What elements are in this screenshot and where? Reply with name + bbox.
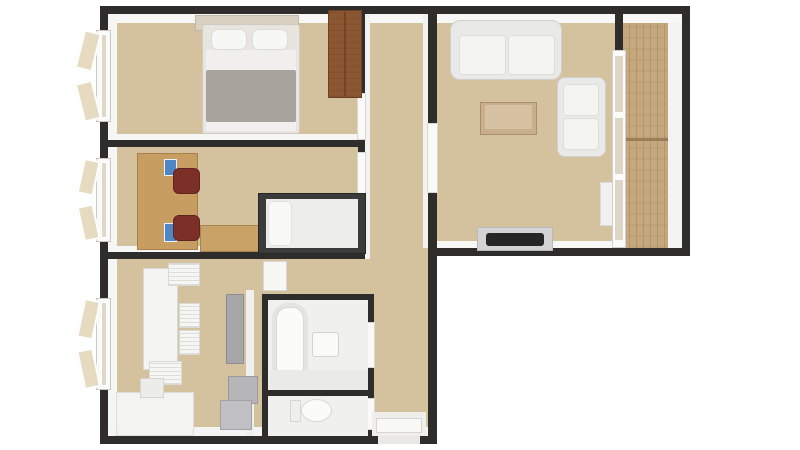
balcony-glass-pane-1 [615,56,623,112]
bed-pillow-right [252,29,288,50]
door-living-panel [427,123,438,193]
wall-top [100,6,690,14]
entrance-door-panel [376,418,422,433]
dining-chair-head [168,263,200,286]
wall-hall-right-full [428,14,437,444]
armchair-cushion-1 [563,84,599,116]
dining-chair-right-2 [179,330,200,355]
door-study-panel [357,152,366,194]
sofa-cushion-right [508,35,555,75]
balcony-glass-pane-3 [615,180,623,240]
bathtub-inner [276,307,304,379]
office-chair-1 [173,168,200,194]
kitchen-window-glass [101,302,107,386]
floor-balcony-wood [622,22,668,248]
fridge [226,294,244,364]
coffee-table-top [485,105,532,129]
balcony-plank-divider [622,138,668,141]
kitchen-sink-unit [140,378,164,398]
wall-bottom-right-block [428,248,690,256]
armchair-cushion-2 [563,118,599,150]
double-bed-blanket [206,70,296,122]
toilet-tank [290,400,301,422]
wall-balcony-stub [615,6,623,50]
wall-right-outer [682,6,690,256]
bed-pillow-left [211,29,247,50]
bathroom-sink [312,332,339,357]
balcony-glass-pane-2 [615,118,623,174]
wardrobe-divider [344,12,346,96]
sofa-cushion-left [459,35,506,75]
toilet-bowl [301,399,332,422]
entrance-threshold [378,436,420,444]
wall-bedroom-study [108,140,358,147]
kitchen-counter [116,392,194,436]
bedroom-window-glass [101,34,107,118]
floor-plan [0,0,800,450]
bath-vanity-shelf [270,370,368,390]
hall-open-door-panel [263,261,287,291]
door-bedroom-panel [357,93,366,140]
tv-screen [486,233,544,246]
balcony-railing-face [668,16,682,248]
appliance-box-2 [220,400,252,430]
dining-chair-right-1 [179,303,200,328]
double-bed-foot [206,122,296,131]
single-bed-pillow [268,201,292,246]
study-window-glass [101,162,107,238]
office-chair-2 [173,215,200,241]
wooden-chest [200,225,260,252]
